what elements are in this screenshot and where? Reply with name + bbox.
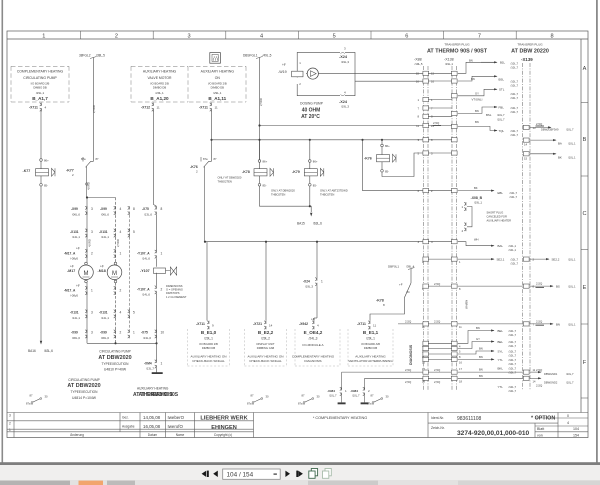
svg-text:THBO2TEN: THBO2TEN <box>218 180 232 184</box>
svg-text:ONLY AT ABT23TDWD: ONLY AT ABT23TDWD <box>320 189 348 193</box>
svg-text:SE2,2: SE2,2 <box>552 258 560 262</box>
svg-text:DIMENSIONS: DIMENSIONS <box>166 284 183 288</box>
svg-text:-X24: -X24 <box>339 55 348 59</box>
svg-text:7: 7 <box>478 33 481 39</box>
svg-text:4: 4 <box>120 230 122 234</box>
svg-text:15: 15 <box>431 72 435 76</box>
svg-text:/29L,1: /29L,1 <box>366 337 375 341</box>
svg-text:I/O BOARD 2/B: I/O BOARD 2/B <box>150 82 169 86</box>
svg-text:THBO2TEN: THBO2TEN <box>271 193 285 197</box>
svg-text:-W19: -W19 <box>278 70 287 74</box>
svg-text:/06L,6: /06L,6 <box>101 212 109 216</box>
svg-text:2: 2 <box>120 289 122 293</box>
svg-text:BN: BN <box>479 368 483 372</box>
svg-text:/10L,7: /10L,7 <box>566 380 574 384</box>
svg-text:15: 15 <box>416 72 420 76</box>
svg-text:3: 3 <box>91 311 93 315</box>
svg-text:AT DBW 20220: AT DBW 20220 <box>511 49 549 55</box>
svg-text:87a: 87a <box>81 157 86 161</box>
svg-text:/29L,1: /29L,1 <box>213 91 222 95</box>
svg-text:11: 11 <box>157 105 160 109</box>
svg-text:BK: BK <box>558 155 562 159</box>
svg-text:/14L,6: /14L,6 <box>142 293 150 297</box>
svg-text:86+: 86+ <box>385 144 390 148</box>
svg-text:-Y107: -Y107 <box>140 269 150 273</box>
svg-text:/10L,1: /10L,1 <box>509 244 517 248</box>
svg-text:4: 4 <box>260 33 263 39</box>
svg-text:/10L,1: /10L,1 <box>568 142 576 146</box>
svg-text:AUXILIARY HEATING: AUXILIARY HEATING <box>137 387 169 391</box>
svg-text:B_E1,1: B_E1,1 <box>363 330 379 335</box>
svg-text:/10L,7: /10L,7 <box>510 195 518 199</box>
svg-text:86+: 86+ <box>313 160 318 164</box>
svg-text:1: 1 <box>161 362 163 366</box>
svg-text:DBF0L1: DBF0L1 <box>388 264 399 268</box>
svg-text:BSL: BSL <box>486 113 492 117</box>
svg-text:BAL: BAL <box>498 244 504 248</box>
svg-text:AT DBW2020: AT DBW2020 <box>67 383 100 389</box>
svg-text:-X138: -X138 <box>444 57 454 61</box>
svg-text:Ident-Nr.: Ident-Nr. <box>431 416 444 420</box>
svg-text:4,0RD: 4,0RD <box>87 182 91 190</box>
svg-text:/10L,7: /10L,7 <box>511 129 519 133</box>
svg-text:COMPLEMENTARY HEATING: COMPLEMENTARY HEATING <box>292 355 335 359</box>
svg-text:VENTILATOR AFTERRUNNING: VENTILATOR AFTERRUNNING <box>348 359 393 363</box>
svg-text:BN: BN <box>471 77 475 81</box>
svg-text:/63L,6: /63L,6 <box>313 222 322 226</box>
svg-text:COMPLEMENTARY HEATING: COMPLEMENTARY HEATING <box>17 70 64 74</box>
svg-text:1: 1 <box>133 331 135 335</box>
svg-text:87a: 87a <box>26 402 31 406</box>
svg-text:+F: +F <box>76 247 80 251</box>
svg-text:-X711: -X711 <box>199 105 208 109</box>
svg-text:983611108: 983611108 <box>457 416 482 422</box>
svg-text:30: 30 <box>386 395 389 399</box>
svg-text:/19L,1: /19L,1 <box>474 200 482 204</box>
svg-text:/10L,7: /10L,7 <box>509 362 517 366</box>
svg-text:-X99: -X99 <box>71 207 78 211</box>
svg-text:I/O BOARD 2/B: I/O BOARD 2/B <box>208 82 227 86</box>
svg-text:154: 154 <box>573 433 579 437</box>
svg-text:4,0RD: 4,0RD <box>88 239 92 247</box>
svg-text:WH/BN: WH/BN <box>465 300 469 309</box>
svg-text:/10L,7: /10L,7 <box>511 96 519 100</box>
svg-text:15: 15 <box>524 156 528 160</box>
svg-text:/19L,1: /19L,1 <box>445 62 453 66</box>
svg-text:1: 1 <box>9 428 11 432</box>
svg-text:AUXILIARY HEATING: AUXILIARY HEATING <box>355 355 386 359</box>
svg-text:EHINGEN: EHINGEN <box>211 425 237 431</box>
svg-text:I/O-MODULE A: I/O-MODULE A <box>302 343 324 347</box>
svg-text:87: 87 <box>371 394 374 398</box>
svg-text:87a: 87a <box>203 157 208 161</box>
svg-text:16: 16 <box>416 79 420 83</box>
svg-text:/10L,7: /10L,7 <box>329 394 337 398</box>
svg-text:/19L,5: /19L,5 <box>415 62 423 66</box>
svg-text:-X131: -X131 <box>99 230 108 234</box>
svg-text:-X942: -X942 <box>299 322 308 326</box>
svg-text:11: 11 <box>373 323 376 327</box>
svg-text:11: 11 <box>416 124 419 128</box>
svg-text:38FGL2: 38FGL2 <box>79 54 91 58</box>
svg-text:-X131: -X131 <box>99 311 108 315</box>
svg-text:-K78: -K78 <box>242 170 250 174</box>
svg-text:2,5Q: 2,5Q <box>405 368 412 372</box>
svg-text:87: 87 <box>96 157 99 161</box>
svg-text:2: 2 <box>115 33 118 39</box>
svg-text:-X75: -X75 <box>141 331 148 335</box>
svg-text:E_OE4,2: E_OE4,2 <box>304 330 323 335</box>
svg-text:CHECK-BACK SINGAL: CHECK-BACK SINGAL <box>249 359 282 363</box>
svg-text:-X24: -X24 <box>339 100 348 104</box>
svg-text:M: M <box>84 271 89 277</box>
svg-text:TYPEEXECUTION: TYPEEXECUTION <box>102 362 130 366</box>
svg-text:-X711: -X711 <box>29 105 38 109</box>
svg-text:ON: ON <box>215 76 221 80</box>
svg-text:8: 8 <box>550 33 553 39</box>
svg-text:/49L,5: /49L,5 <box>263 54 272 58</box>
svg-text:CANCELED FOR: CANCELED FOR <box>487 215 507 219</box>
svg-text:/19L,3: /19L,3 <box>341 60 349 64</box>
svg-text:104: 104 <box>573 427 579 431</box>
svg-text:3: 3 <box>187 33 190 39</box>
svg-text:VALVE MOTOR: VALVE MOTOR <box>148 76 172 80</box>
svg-text:B_E1,0: B_E1,0 <box>201 330 217 335</box>
svg-text:DIMSTOPS: DIMSTOPS <box>166 291 180 295</box>
svg-text:AT THERMO 90S / 90ST: AT THERMO 90S / 90ST <box>427 49 488 55</box>
svg-text:B: B <box>583 137 587 143</box>
svg-text:B_E2,2: B_E2,2 <box>258 330 274 335</box>
svg-text:Ausgabe: Ausgabe <box>122 425 135 429</box>
svg-text:SYL: SYL <box>498 349 504 353</box>
svg-text:DOSING PUMP: DOSING PUMP <box>300 102 323 106</box>
svg-text:30: 30 <box>317 395 320 399</box>
svg-text:-X99: -X99 <box>100 207 107 211</box>
svg-text:2: 2 <box>9 422 11 426</box>
svg-text:-X131: -X131 <box>70 311 79 315</box>
svg-text:VT/GNLI: VT/GNLI <box>472 98 483 102</box>
svg-text:F: F <box>583 360 587 366</box>
svg-text:BN: BN <box>475 109 479 113</box>
svg-text:Gez.: Gez. <box>122 416 129 420</box>
svg-text:/10L,1: /10L,1 <box>509 248 517 252</box>
svg-text:-X99: -X99 <box>100 331 107 335</box>
svg-text:BA16: BA16 <box>28 349 36 353</box>
svg-text:/10L,7: /10L,7 <box>566 372 574 376</box>
svg-text:von: von <box>537 433 543 437</box>
svg-text:IweberO: IweberO <box>168 415 185 420</box>
svg-text:CIRCULATING PUMP: CIRCULATING PUMP <box>99 350 130 354</box>
svg-text:/13L,7: /13L,7 <box>146 367 154 371</box>
svg-text:LIEBHERR WERK: LIEBHERR WERK <box>200 416 247 422</box>
svg-text:I/O BOARD 2/B: I/O BOARD 2/B <box>31 82 50 86</box>
svg-text:CIRCULATING PUMP: CIRCULATING PUMP <box>23 76 57 80</box>
svg-text:87: 87 <box>30 394 33 398</box>
svg-text:/10L,7: /10L,7 <box>511 61 519 65</box>
svg-text:FBL: FBL <box>499 105 505 109</box>
svg-text:/14L,1: /14L,1 <box>101 316 109 320</box>
svg-text:14,05,08: 14,05,08 <box>143 415 161 420</box>
svg-text:BA15: BA15 <box>297 222 305 226</box>
svg-text:TRANSFER PLUG: TRANSFER PLUG <box>444 42 470 46</box>
svg-text:-M17: -M17 <box>67 269 75 273</box>
svg-text:TQL: TQL <box>499 129 505 133</box>
svg-text:DRIBING CAB: DRIBING CAB <box>257 346 275 350</box>
svg-text:/10L,7: /10L,7 <box>509 340 517 344</box>
svg-text:GY: GY <box>476 337 480 341</box>
svg-text:2: 2 <box>91 252 93 256</box>
svg-text:BS: BS <box>556 285 560 289</box>
svg-text:14: 14 <box>269 323 273 327</box>
svg-text:85-: 85- <box>313 183 317 187</box>
svg-text:/06L,6: /06L,6 <box>72 212 80 216</box>
svg-text:/10L,7: /10L,7 <box>509 385 517 389</box>
svg-text:/10L,7: /10L,7 <box>511 106 519 110</box>
svg-text:8: 8 <box>133 207 135 211</box>
svg-text:86+: 86+ <box>263 160 268 164</box>
svg-text:DIAGNOSIS: DIAGNOSIS <box>304 359 321 363</box>
svg-text:/10L,1: /10L,1 <box>568 285 576 289</box>
svg-text:I/O BOARD 2/B: I/O BOARD 2/B <box>199 342 218 346</box>
svg-text:-X99: -X99 <box>71 331 78 335</box>
svg-text:0: 0 <box>567 414 569 418</box>
svg-text:DIAGNOSIS: DIAGNOSIS <box>409 344 413 365</box>
svg-text:-X131: -X131 <box>70 230 79 234</box>
svg-text:BKL: BKL <box>498 367 504 371</box>
svg-text:B_A1,11: B_A1,11 <box>208 96 226 101</box>
svg-text:87: 87 <box>214 157 217 161</box>
svg-text:SE2,1: SE2,1 <box>497 258 505 262</box>
svg-text:86+: 86+ <box>44 159 49 163</box>
svg-text:-Y107_A: -Y107_A <box>137 288 150 292</box>
svg-text:BN: BN <box>479 355 483 359</box>
svg-text:/10L,7: /10L,7 <box>509 358 517 362</box>
svg-text:2,5Q: 2,5Q <box>536 122 543 126</box>
svg-text:+F: +F <box>311 317 315 321</box>
svg-text:2,5Q: 2,5Q <box>536 282 543 286</box>
svg-text:-X711: -X711 <box>196 322 205 326</box>
svg-text:1 2 CLOSEMENT: 1 2 CLOSEMENT <box>166 295 187 299</box>
svg-text:-K79: -K79 <box>292 170 300 174</box>
svg-text:AUXILIARY HEATING: AUXILIARY HEATING <box>143 70 177 74</box>
svg-text:M: M <box>112 271 117 277</box>
svg-text:/10L,7: /10L,7 <box>509 344 517 348</box>
svg-text:G = OPENING: G = OPENING <box>166 288 183 292</box>
svg-text:/10L,7: /10L,7 <box>352 394 360 398</box>
svg-text:/14L,1: /14L,1 <box>101 235 109 239</box>
svg-text:/13L,6: /13L,6 <box>143 336 151 340</box>
svg-text:-XM4: -XM4 <box>144 362 152 366</box>
svg-text:TYPEEXECUTION: TYPEEXECUTION <box>71 390 99 394</box>
svg-text:-K76: -K76 <box>364 157 372 161</box>
svg-text:30: 30 <box>45 395 48 399</box>
svg-text:-X721: -X721 <box>253 322 262 326</box>
svg-text:STL: STL <box>499 88 505 92</box>
svg-text:AUXILIARY HEATING: AUXILIARY HEATING <box>201 70 235 74</box>
svg-text:DBWGND1: DBWGND1 <box>544 372 558 376</box>
svg-text:1: 1 <box>120 252 122 256</box>
svg-text:2,5Q: 2,5Q <box>434 282 441 286</box>
svg-text:DBW2GBF3A9: DBW2GBF3A9 <box>541 128 559 132</box>
svg-text:BEL: BEL <box>498 340 504 344</box>
svg-text:/19L,3: /19L,3 <box>341 105 349 109</box>
svg-text:AUXILIARY HEATING ON: AUXILIARY HEATING ON <box>248 355 284 359</box>
svg-text:DIMBO DB: DIMBO DB <box>364 346 377 350</box>
svg-text:/10L,7: /10L,7 <box>509 329 517 333</box>
svg-text:1: 1 <box>42 33 45 39</box>
svg-text:-M17_A: -M17_A <box>64 289 76 293</box>
svg-text:BSL: BSL <box>499 77 505 81</box>
svg-text:Änderung: Änderung <box>70 433 84 437</box>
svg-text:2,5RD: 2,5RD <box>92 105 96 113</box>
svg-text:BN: BN <box>479 347 483 351</box>
svg-text:WH: WH <box>474 238 479 242</box>
svg-text:+F: +F <box>282 63 286 67</box>
svg-text:/10L,7: /10L,7 <box>497 113 505 117</box>
svg-text:AT THERMO 90S: AT THERMO 90S <box>139 392 179 398</box>
svg-text:87a: 87a <box>367 402 372 406</box>
svg-text:8: 8 <box>161 207 163 211</box>
svg-text:Name: Name <box>176 433 185 437</box>
svg-text:+F: +F <box>76 284 80 288</box>
svg-text:-X712: -X712 <box>141 105 150 109</box>
svg-text:/06L,6: /06L,6 <box>72 336 80 340</box>
svg-text:Zeich-Nr.: Zeich-Nr. <box>431 426 445 430</box>
svg-text:30: 30 <box>266 395 269 399</box>
svg-text:IwerofO: IwerofO <box>168 424 184 429</box>
svg-text:2,5RD: 2,5RD <box>116 239 120 247</box>
svg-text:U4814 P=104W: U4814 P=104W <box>72 396 97 400</box>
svg-text:4: 4 <box>567 421 569 425</box>
svg-text:2,5Q: 2,5Q <box>405 380 412 384</box>
svg-text:10: 10 <box>161 331 165 335</box>
svg-text:/24L,3: /24L,3 <box>309 337 318 341</box>
svg-text:84: 84 <box>407 290 410 294</box>
svg-text:5: 5 <box>133 230 135 234</box>
svg-text:-Y107_A: -Y107_A <box>137 252 150 256</box>
svg-text:14: 14 <box>524 143 528 147</box>
svg-text:/10L,7: /10L,7 <box>511 258 519 262</box>
svg-text:3: 3 <box>91 207 93 211</box>
svg-text:/10L,7: /10L,7 <box>509 349 517 353</box>
svg-text:B_A1,20: B_A1,20 <box>150 96 169 101</box>
svg-text:SHORT PLUG: SHORT PLUG <box>487 211 504 215</box>
svg-text:DIMBO DB: DIMBO DB <box>33 85 46 89</box>
svg-text:TRANSFER PLUG: TRANSFER PLUG <box>517 42 543 46</box>
svg-text:16: 16 <box>431 79 435 83</box>
svg-text:DBSFGL1: DBSFGL1 <box>243 54 258 58</box>
svg-text:BEL: BEL <box>498 329 504 333</box>
svg-text:5: 5 <box>133 311 135 315</box>
svg-text:/29L,1: /29L,1 <box>36 91 45 95</box>
svg-text:2,5Q: 2,5Q <box>536 384 543 388</box>
svg-text:11: 11 <box>215 105 218 109</box>
svg-text:AUXILIARY HEATER: AUXILIARY HEATER <box>487 219 512 223</box>
svg-text:/10L,1: /10L,1 <box>568 258 576 262</box>
svg-text:/14L,1: /14L,1 <box>72 235 80 239</box>
svg-text:BN: BN <box>479 374 483 378</box>
svg-text:YTL: YTL <box>498 385 504 389</box>
svg-text:1: 1 <box>161 252 163 256</box>
svg-text:/10L,7: /10L,7 <box>510 191 518 195</box>
svg-text:THBO2TEN: THBO2TEN <box>320 193 334 197</box>
svg-text:2,5Q: 2,5Q <box>405 320 412 324</box>
svg-text:1: 1 <box>321 280 323 284</box>
svg-text:3274-920,00,01,000-010: 3274-920,00,01,000-010 <box>457 430 530 437</box>
svg-text:/10L,7: /10L,7 <box>511 84 519 88</box>
svg-text:E: E <box>583 285 587 291</box>
svg-text:3: 3 <box>91 331 93 335</box>
svg-text:2,5Q: 2,5Q <box>433 121 440 125</box>
svg-text:/-08y5: /-08y5 <box>70 257 78 261</box>
svg-text:+F: +F <box>399 283 403 287</box>
svg-text:-K77: -K77 <box>23 169 31 173</box>
svg-text:CHECK-BACK SINGAL: CHECK-BACK SINGAL <box>192 359 225 363</box>
svg-text:3: 3 <box>91 230 93 234</box>
svg-text:2: 2 <box>161 288 163 292</box>
svg-text:85-: 85- <box>385 169 389 173</box>
svg-text:/06L,6: /06L,6 <box>101 336 109 340</box>
svg-text:DIMBO DB: DIMBO DB <box>211 85 224 89</box>
svg-text:B1L: B1L <box>500 61 506 65</box>
svg-text:B_A1,7: B_A1,7 <box>32 96 48 101</box>
svg-text:2,5Q: 2,5Q <box>434 368 441 372</box>
svg-text:/10L,1: /10L,1 <box>568 322 576 326</box>
svg-text:/10L,7: /10L,7 <box>509 333 517 337</box>
svg-text:/29L,2: /29L,2 <box>261 337 270 341</box>
svg-text:-X24: -X24 <box>303 280 310 284</box>
svg-text:2,5Q: 2,5Q <box>536 368 543 372</box>
svg-text:/19L,3: /19L,3 <box>305 285 313 289</box>
svg-text:-X75: -X75 <box>142 207 149 211</box>
svg-text:CIRCULATING PUMP: CIRCULATING PUMP <box>68 378 99 382</box>
svg-text:BN: BN <box>556 322 560 326</box>
svg-text:C: C <box>582 211 586 217</box>
svg-text:-X984: -X984 <box>350 389 358 393</box>
svg-text:-X984: -X984 <box>327 389 335 393</box>
svg-text:5: 5 <box>333 33 336 39</box>
svg-text:2,5Q: 2,5Q <box>434 320 441 324</box>
svg-text:3: 3 <box>9 414 11 418</box>
svg-text:/10L,7: /10L,7 <box>509 371 517 375</box>
svg-text:/10L,7: /10L,7 <box>511 110 519 114</box>
svg-text:BN: BN <box>469 58 473 62</box>
svg-text:85-: 85- <box>263 183 267 187</box>
svg-text:BN: BN <box>475 120 479 124</box>
svg-text:* OPTION: * OPTION <box>531 416 555 422</box>
svg-text:DIMBO DB: DIMBO DB <box>153 85 166 89</box>
svg-text:104 / 154: 104 / 154 <box>227 472 254 479</box>
svg-text:U4810 P=40W: U4810 P=40W <box>104 368 127 372</box>
svg-text:/10L,7: /10L,7 <box>511 133 519 137</box>
svg-text:ONLY AT DBW2020: ONLY AT DBW2020 <box>218 176 242 180</box>
svg-text:/-08y5: /-08y5 <box>70 294 78 298</box>
svg-text:2,5Q: 2,5Q <box>536 319 543 323</box>
svg-text:/38L,5: /38L,5 <box>96 54 105 58</box>
svg-text:-X88: -X88 <box>414 57 422 61</box>
svg-text:/10L,7: /10L,7 <box>509 389 517 393</box>
svg-text:Datum: Datum <box>148 433 158 437</box>
svg-text:EBL: EBL <box>498 191 504 195</box>
svg-text:ONLY AT DBW2020: ONLY AT DBW2020 <box>271 189 295 193</box>
svg-text:/29L,1: /29L,1 <box>204 337 213 341</box>
svg-text:/63L,6: /63L,6 <box>44 349 53 353</box>
svg-text:A: A <box>583 66 587 72</box>
svg-text:/14L,1: /14L,1 <box>72 316 80 320</box>
svg-text:/10L,7: /10L,7 <box>509 367 517 371</box>
svg-text:-M18: -M18 <box>98 269 106 273</box>
svg-text:AUXILIARY HEATING ON: AUXILIARY HEATING ON <box>191 355 227 359</box>
